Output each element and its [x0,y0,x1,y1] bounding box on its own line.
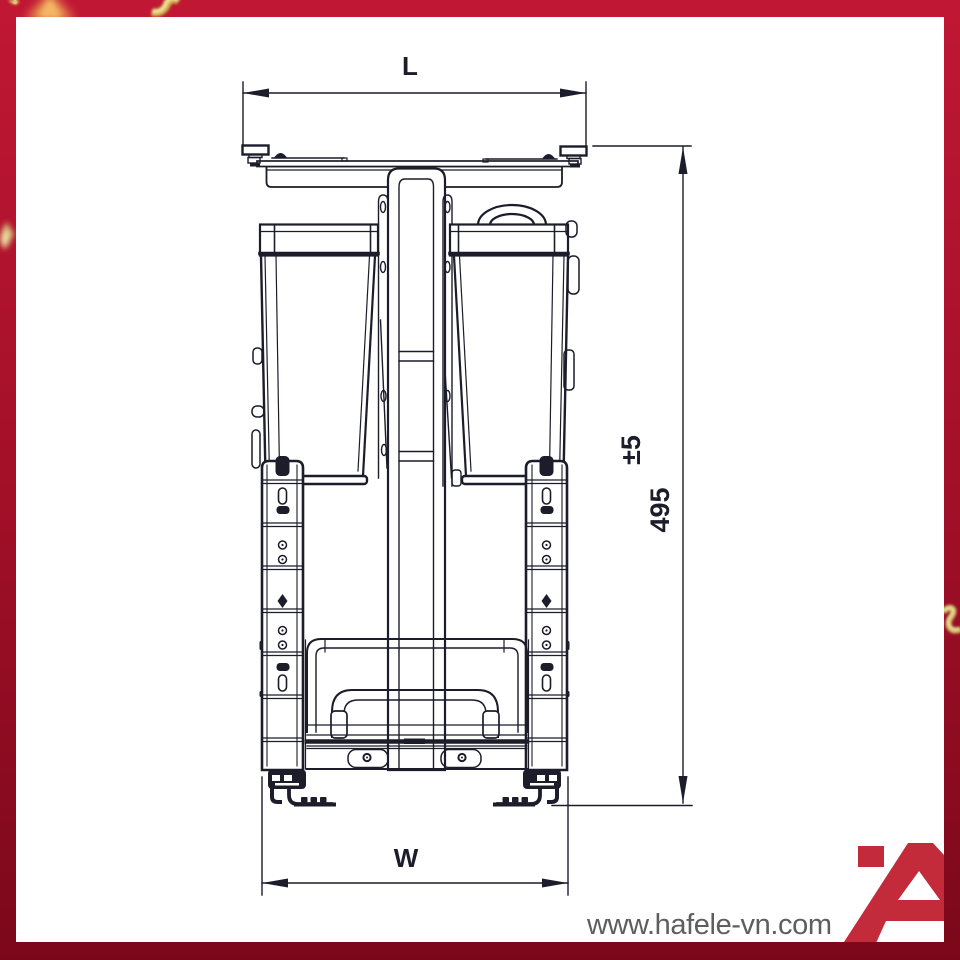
svg-text:www.hafele-vn.com: www.hafele-vn.com [586,909,832,941]
svg-text:±5: ±5 [616,435,646,465]
svg-text:L: L [402,51,418,81]
svg-text:495: 495 [645,487,675,532]
svg-text:W: W [394,843,419,873]
